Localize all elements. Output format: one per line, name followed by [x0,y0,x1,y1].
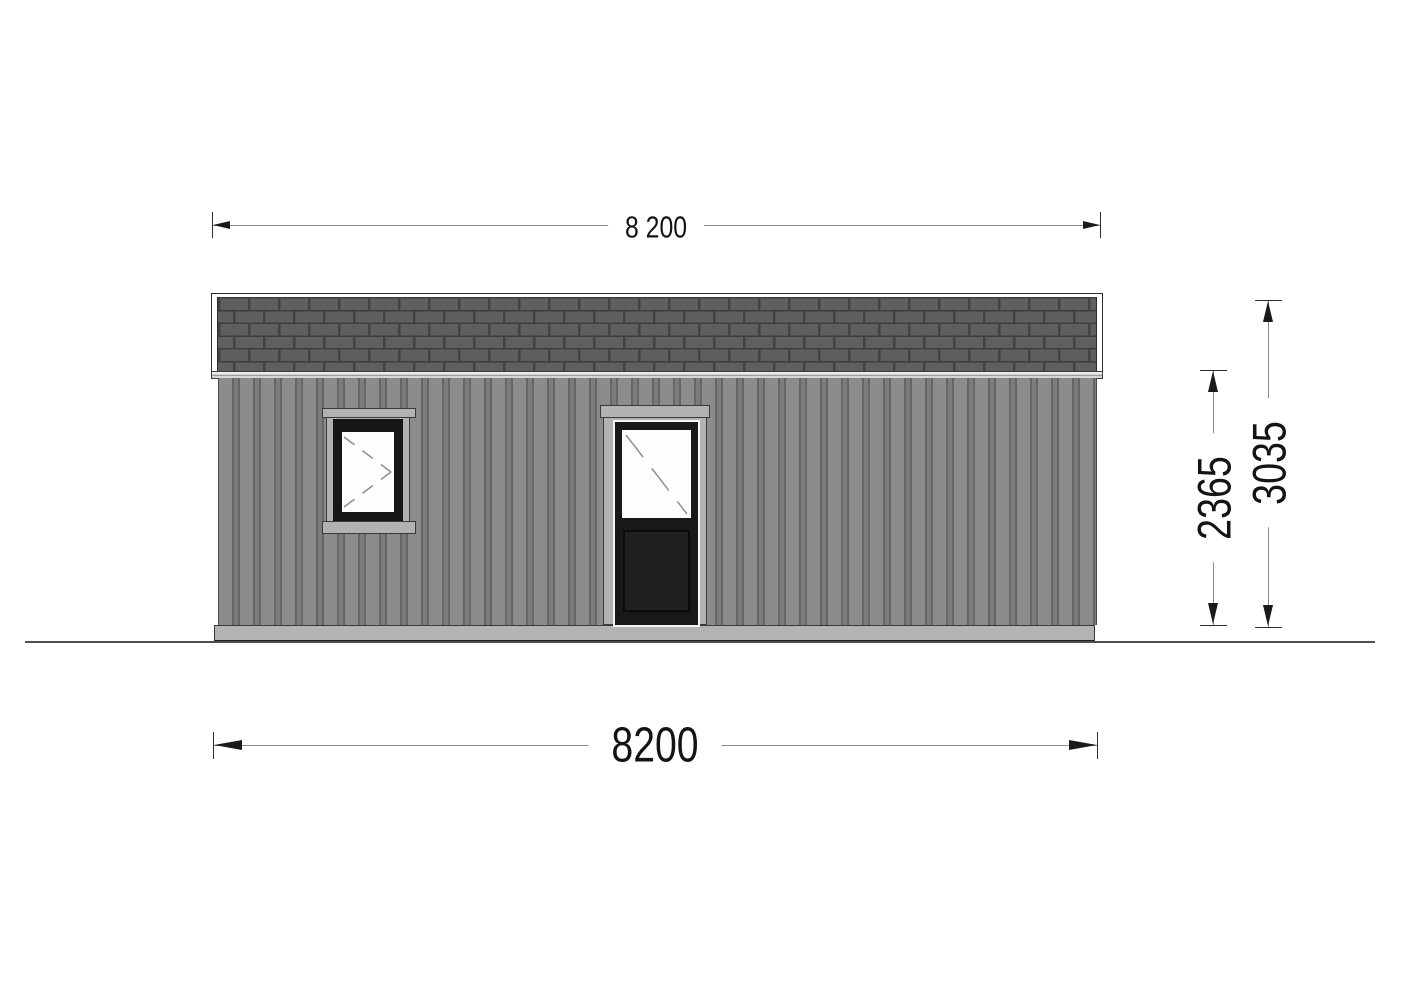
dimension-label-bottom-width: 8200 [588,722,721,771]
dimension-tick [1100,212,1101,238]
door-glass [622,430,691,518]
dimension-tick [1097,732,1098,759]
dimension-tick [1200,625,1227,626]
dimension-arrow-up-icon [1208,371,1218,392]
window-glass [342,432,394,512]
dimension-arrow-down-icon [1208,603,1218,624]
elevation-drawing-canvas: 8 200 8200 2365 3035 [0,0,1403,992]
dimension-arrow-right-icon [1069,740,1097,750]
dimension-label-wall-height: 2365 [1191,434,1238,563]
dimension-arrow-up-icon [1263,301,1273,322]
dimension-arrow-left-icon [213,221,230,229]
dimension-label-total-height: 3035 [1246,399,1293,528]
window-trim-bottom [322,521,416,534]
dimension-label-top-width: 8 200 [608,212,704,243]
window-opening-direction-icon [342,432,394,512]
door-opening-direction-icon [622,430,691,518]
door-lower-panel [623,530,690,612]
dimension-arrow-left-icon [214,740,242,750]
roof [211,293,1103,372]
roof-shingles [217,297,1097,372]
dimension-arrow-right-icon [1083,221,1100,229]
dimension-tick [1255,627,1282,628]
dimension-arrow-down-icon [1263,605,1273,626]
ground-line [25,641,1375,643]
